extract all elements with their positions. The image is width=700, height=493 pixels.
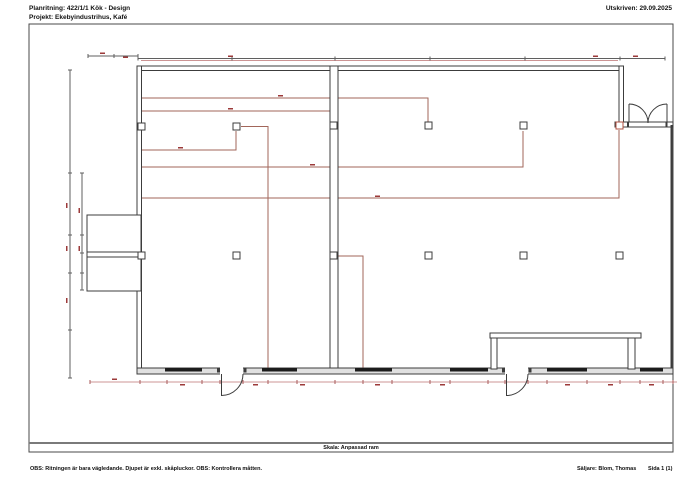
service-lines xyxy=(141,98,619,368)
page-number: Sida 1 (1) xyxy=(648,466,672,472)
walls xyxy=(87,66,673,374)
drawing-title: Planritning: 422/1/1 Kök - Design xyxy=(29,5,130,12)
door-swings xyxy=(222,104,668,396)
project-title: Projekt: Ekebyindustrihus, Kafé xyxy=(29,14,127,21)
printed-plan-page: Planritning: 422/1/1 Kök - Design Projek… xyxy=(0,0,700,493)
floor-plan-canvas xyxy=(0,0,700,493)
print-date: Utskriven: 29.09.2025 xyxy=(560,5,672,12)
columns xyxy=(138,122,623,259)
footer-note: OBS: Ritningen är bara vägledande. Djupe… xyxy=(30,466,262,472)
seller-label: Säljare: Blom, Thomas xyxy=(577,466,636,472)
scale-label: Skala: Anpassad ram xyxy=(29,445,673,451)
